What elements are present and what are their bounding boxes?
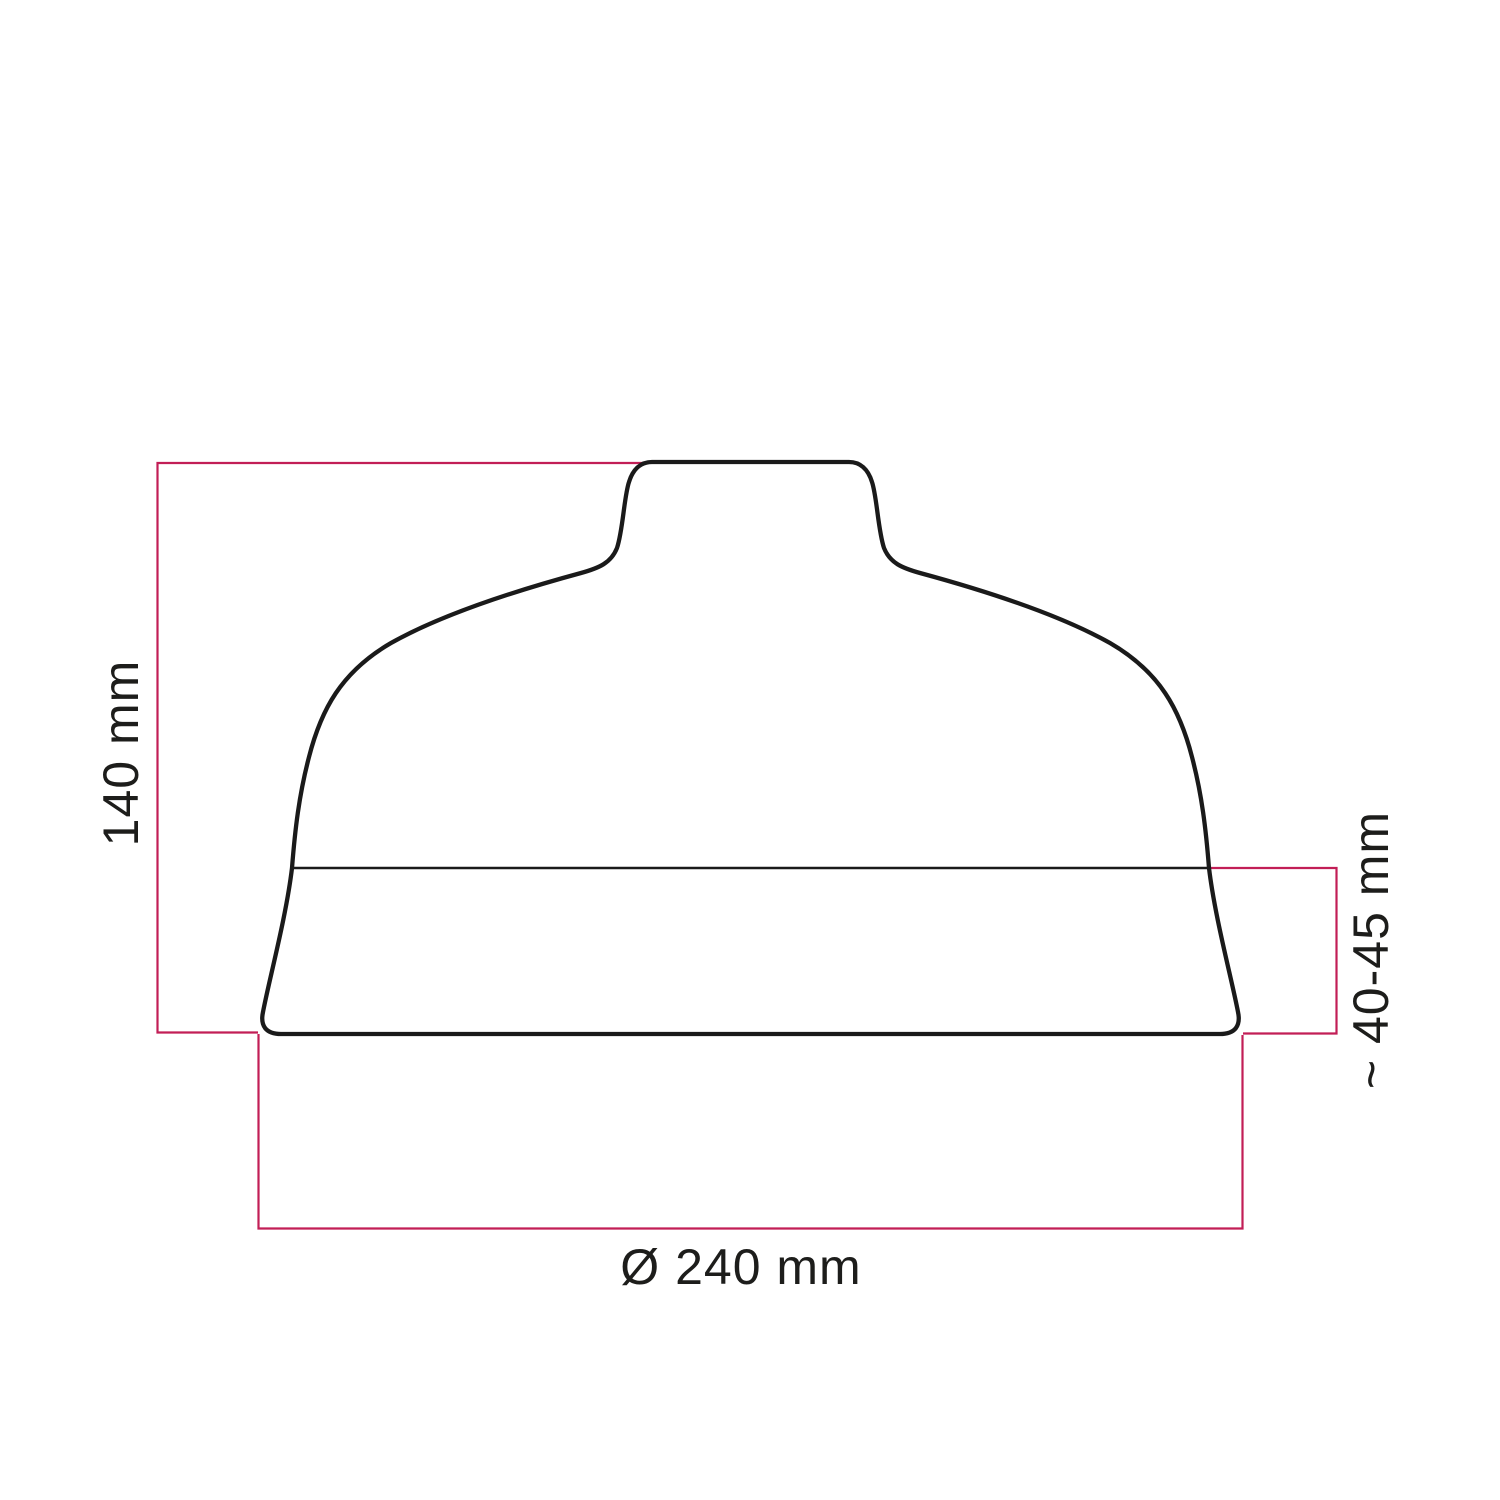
diameter-dimension-line (259, 1034, 1243, 1229)
height-dimension-label: 140 mm (92, 660, 150, 847)
diagram-canvas: 140 mm ~ 40-45 mm Ø 240 mm (0, 0, 1500, 1500)
lampshade-outline (262, 462, 1239, 1034)
height-dimension-line (158, 463, 649, 1033)
band-dimension-line (1211, 868, 1337, 1034)
band-height-dimension-label: ~ 40-45 mm (1342, 811, 1400, 1089)
diameter-dimension-label: Ø 240 mm (620, 1238, 861, 1296)
